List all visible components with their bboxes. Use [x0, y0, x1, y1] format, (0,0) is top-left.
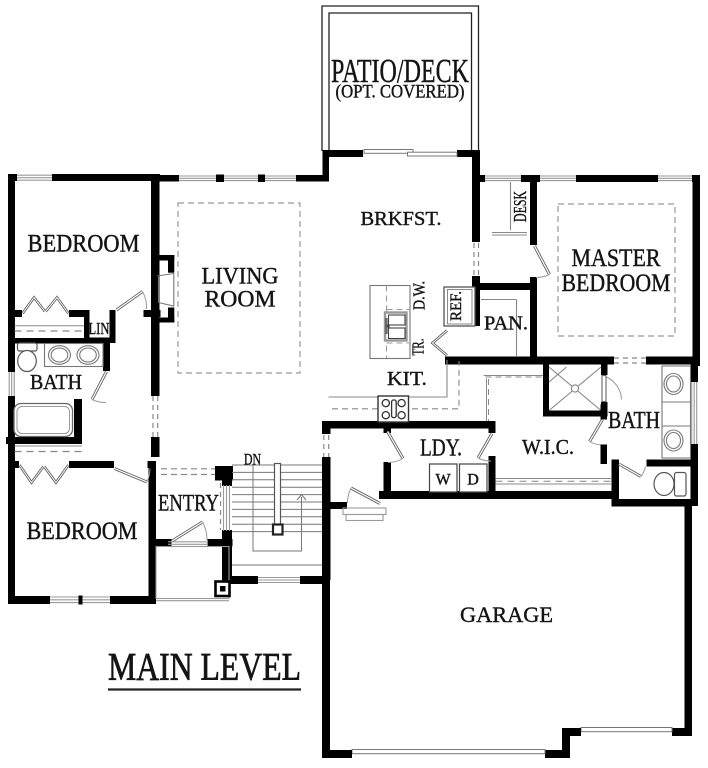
svg-text:W: W: [435, 472, 451, 489]
svg-text:D: D: [467, 472, 479, 489]
svg-text:BEDROOM: BEDROOM: [562, 270, 671, 297]
svg-text:BATH: BATH: [30, 370, 82, 394]
svg-text:D.W.: D.W.: [410, 281, 429, 310]
svg-text:ROOM: ROOM: [205, 287, 276, 312]
svg-text:MASTER: MASTER: [572, 245, 661, 272]
svg-text:DN: DN: [244, 452, 261, 469]
svg-text:BATH: BATH: [608, 408, 660, 434]
svg-text:GARAGE: GARAGE: [460, 602, 553, 627]
svg-text:LIN.: LIN.: [89, 319, 113, 338]
svg-text:DESK: DESK: [510, 191, 530, 222]
svg-text:W.I.C.: W.I.C.: [522, 435, 574, 459]
svg-text:(OPT. COVERED): (OPT. COVERED): [336, 83, 465, 103]
svg-text:LIVING: LIVING: [202, 264, 279, 289]
svg-text:ENTRY: ENTRY: [158, 491, 219, 516]
svg-text:PAN.: PAN.: [484, 313, 528, 335]
svg-text:KIT.: KIT.: [387, 368, 427, 390]
svg-text:REF.: REF.: [448, 291, 465, 321]
svg-text:BEDROOM: BEDROOM: [27, 518, 138, 545]
svg-text:BEDROOM: BEDROOM: [28, 231, 140, 258]
svg-text:LDY.: LDY.: [420, 436, 462, 462]
svg-text:TR.: TR.: [409, 339, 428, 356]
svg-text:MAIN LEVEL: MAIN LEVEL: [108, 646, 301, 689]
svg-text:BRKFST.: BRKFST.: [361, 208, 442, 230]
